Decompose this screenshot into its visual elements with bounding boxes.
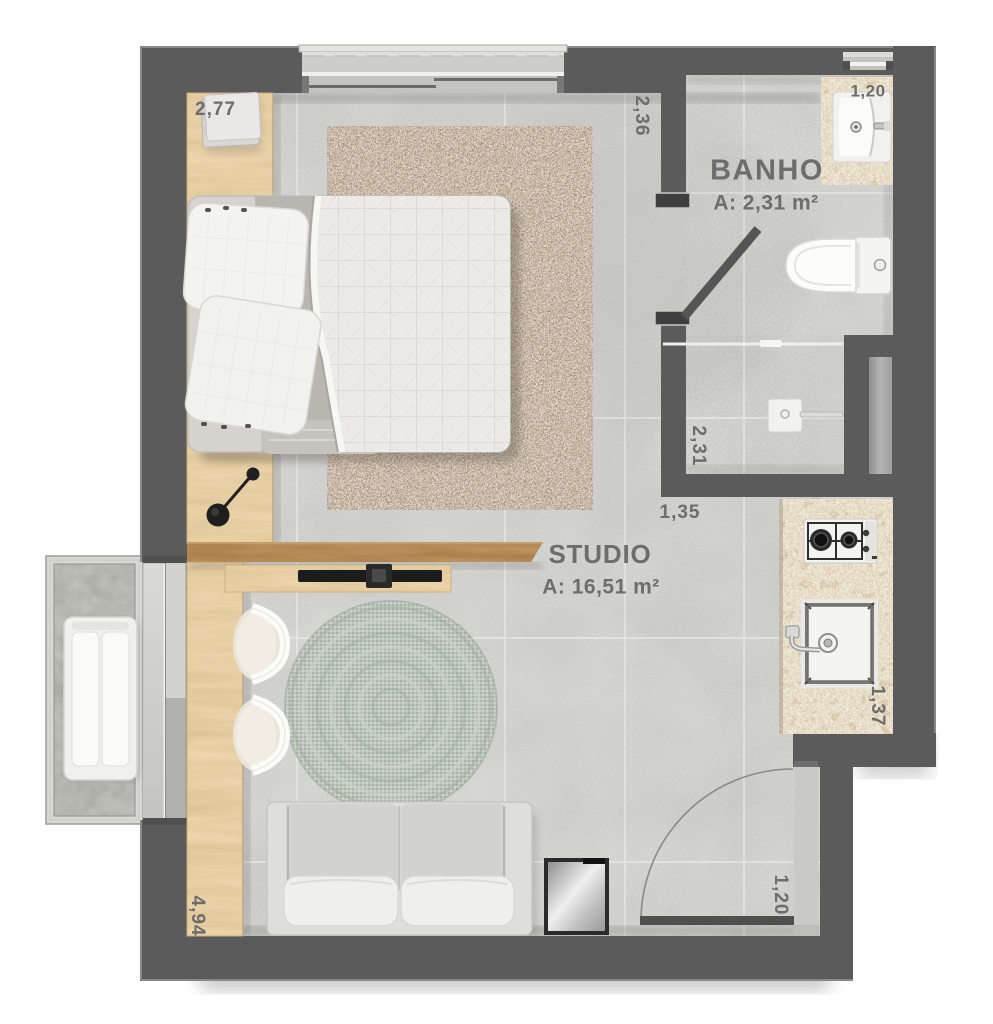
svg-text:1,20: 1,20 — [770, 875, 791, 916]
svg-text:A: 16,51 m²: A: 16,51 m² — [542, 576, 660, 599]
svg-text:2,36: 2,36 — [631, 96, 652, 137]
svg-text:4,94: 4,94 — [187, 896, 208, 937]
svg-text:A: 2,31 m²: A: 2,31 m² — [713, 192, 818, 215]
svg-text:2,31: 2,31 — [688, 426, 709, 467]
svg-text:1,35: 1,35 — [660, 502, 701, 523]
svg-text:STUDIO: STUDIO — [548, 539, 651, 569]
svg-text:2,77: 2,77 — [195, 99, 236, 120]
svg-text:BANHO: BANHO — [710, 155, 824, 187]
svg-text:1,20: 1,20 — [850, 81, 885, 100]
svg-text:1,37: 1,37 — [867, 686, 888, 727]
